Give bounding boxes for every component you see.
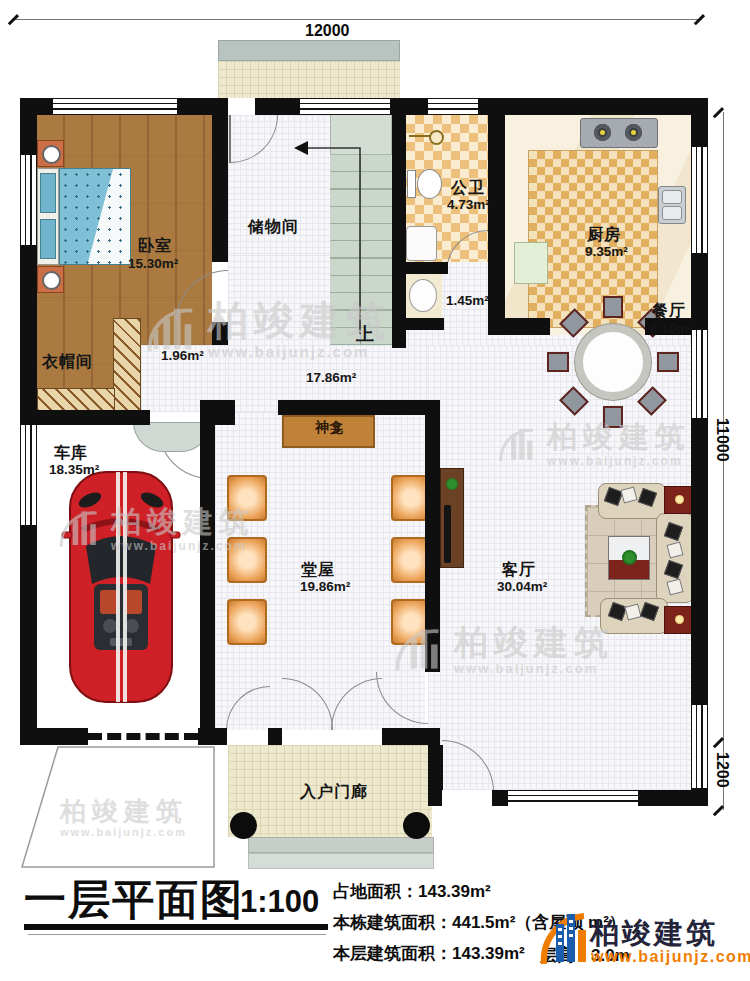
room-area-main-hall: 19.86m² [300, 579, 350, 594]
room-area-bedroom: 15.30m² [128, 256, 178, 271]
washing-machine-icon [406, 226, 437, 261]
dimension-right-lower: 1200 [713, 752, 731, 788]
sink-basin [662, 206, 682, 220]
window [428, 98, 478, 115]
tv-icon [444, 505, 451, 563]
wall [20, 410, 150, 425]
floor-area-line: 本层建筑面积：143.39m² [333, 942, 525, 965]
brand-logo-url: www.baijunjz.com [591, 948, 750, 966]
wall [425, 400, 440, 672]
room-area-garage: 18.35m² [49, 462, 99, 477]
room-area-kitchen: 9.35m² [585, 244, 628, 259]
wall [492, 790, 508, 806]
dining-chair [603, 296, 623, 318]
title-underline [24, 924, 328, 930]
porch-step-1 [248, 837, 434, 853]
room-label-main-hall: 堂屋 [301, 560, 335, 581]
area-niche: 1.45m² [446, 293, 489, 308]
cloakroom-rack-bottom [37, 388, 115, 412]
window [53, 98, 177, 115]
bed-pillow [40, 219, 56, 259]
sink-basin [662, 190, 682, 204]
wall [212, 115, 228, 262]
hall-chair [227, 537, 267, 583]
kitchen-stool [514, 242, 548, 284]
room-label-cloakroom: 衣帽间 [42, 352, 93, 373]
toilet-bowl-icon [417, 169, 442, 199]
wall [398, 318, 444, 330]
wall [20, 525, 37, 745]
window [20, 155, 37, 245]
stove-icon [580, 118, 658, 148]
scale-label: 1:100 [240, 884, 319, 920]
lamp-icon [42, 271, 61, 290]
wall [478, 98, 708, 115]
plant-icon [622, 550, 637, 565]
wall [638, 790, 708, 806]
area-hall: 17.86m² [306, 370, 356, 385]
room-label-bedroom: 卧室 [138, 236, 172, 257]
shrine-label: 神龛 [315, 419, 343, 437]
area-corridor: 1.96m² [161, 348, 204, 363]
room-label-bath: 公卫 [451, 178, 485, 199]
wall [200, 410, 215, 745]
wall [425, 728, 440, 745]
dining-chair [603, 406, 623, 428]
wall [428, 745, 443, 790]
burner-flame-dot [631, 130, 636, 135]
wall [20, 98, 37, 155]
stair-arrow [294, 134, 374, 340]
room-label-dining: 餐厅 [652, 301, 686, 322]
wall [20, 728, 88, 745]
plant-icon [446, 478, 458, 490]
porch-column [230, 812, 257, 839]
room-label-living: 客厅 [502, 560, 536, 581]
window [691, 147, 708, 253]
dining-table [575, 324, 651, 400]
dimension-line-top [14, 19, 702, 20]
burner-flame-dot [600, 130, 605, 135]
dimension-tick [713, 805, 724, 816]
car [60, 468, 182, 706]
driveway [18, 745, 218, 873]
wall [398, 262, 448, 274]
wall [177, 98, 228, 115]
room-area-dining: 6.10m² [650, 321, 693, 336]
wall [212, 322, 228, 345]
window [300, 98, 390, 115]
wall [691, 98, 708, 147]
porch-column [403, 812, 430, 839]
window [508, 790, 638, 806]
washbasin-icon [409, 279, 437, 312]
room-label-porch: 入户门廊 [300, 782, 368, 803]
cloakroom-rack-vertical [113, 318, 141, 412]
lamp-icon [42, 145, 61, 164]
window [691, 330, 708, 418]
wall [268, 728, 282, 745]
dining-chair [657, 352, 679, 372]
towel-ring-icon [429, 130, 444, 145]
wall [488, 98, 505, 335]
floor-plan-sheet: 柏竣建筑www.baijunjz.com 柏竣建筑www.baijunjz.co… [0, 0, 750, 981]
wall [20, 245, 37, 415]
wall [428, 790, 442, 806]
dimension-top: 12000 [305, 22, 350, 40]
window [20, 415, 37, 525]
porch-step-2 [248, 853, 434, 869]
bed-pillow [40, 173, 56, 213]
storage-door-leaf [229, 115, 231, 163]
terrace-floor [218, 61, 400, 98]
wall [691, 253, 708, 330]
hall-chair [227, 475, 267, 521]
dining-chair [547, 352, 569, 372]
terrace-band [218, 40, 400, 61]
hall-chair [227, 599, 267, 645]
wall [278, 400, 440, 415]
toilet-icon [407, 170, 416, 198]
bed-mattress [59, 168, 131, 265]
title-underline-thin [28, 934, 326, 935]
stair-up-label: 上 [356, 322, 375, 346]
room-area-bath: 4.73m² [447, 197, 490, 212]
page-title: 一层平面图 [24, 872, 244, 928]
window [691, 705, 708, 788]
room-label-garage: 车库 [54, 443, 88, 464]
brand-logo-icon [538, 908, 590, 970]
wall [392, 98, 406, 348]
room-label-kitchen: 厨房 [587, 225, 621, 246]
garage-roller-door [88, 733, 198, 740]
dimension-right-main: 11000 [713, 418, 731, 462]
wall [255, 98, 300, 115]
room-label-storage: 储物间 [248, 217, 299, 238]
wall [691, 418, 708, 705]
room-area-living: 30.04m² [497, 579, 547, 594]
wall [488, 318, 550, 335]
land-area-line: 占地面积：143.39m² [333, 880, 491, 903]
